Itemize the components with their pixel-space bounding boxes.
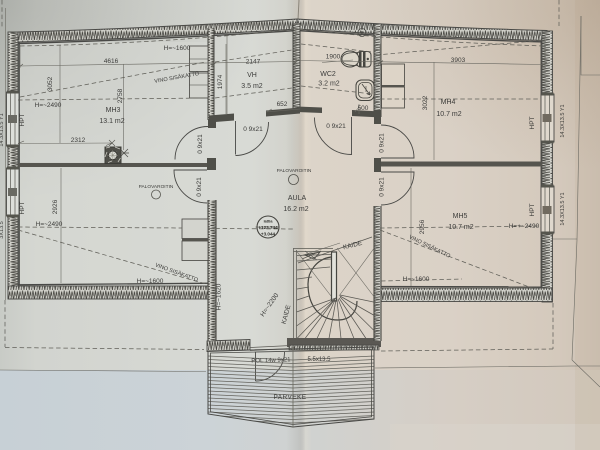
svg-text:0 9x21: 0 9x21: [379, 177, 386, 197]
svg-text:HPT: HPT: [19, 113, 26, 126]
svg-text:PALOVAROITIN: PALOVAROITIN: [139, 184, 174, 190]
svg-text:2926: 2926: [52, 199, 59, 214]
svg-text:HPT: HPT: [529, 116, 536, 129]
svg-text:MH5: MH5: [453, 213, 468, 220]
svg-text:13.1 m2: 13.1 m2: [99, 118, 124, 125]
svg-text:H=~2490: H=~2490: [36, 221, 63, 228]
svg-text:500: 500: [358, 105, 369, 112]
svg-text:H=+~2490: H=+~2490: [509, 223, 540, 230]
svg-text:4616: 4616: [104, 58, 119, 65]
svg-text:5.5x13.5: 5.5x13.5: [307, 357, 331, 363]
svg-text:0 9x21: 0 9x21: [197, 134, 204, 154]
svg-text:3.5 m2: 3.5 m2: [241, 83, 263, 90]
svg-text:3903: 3903: [451, 57, 466, 64]
svg-text:14.3X13.5 Y1: 14.3X13.5 Y1: [560, 192, 566, 225]
svg-text:14.3X13.5 Y1: 14.3X13.5 Y1: [0, 113, 5, 146]
svg-text:WC2: WC2: [320, 71, 336, 78]
svg-text:MH4: MH4: [441, 99, 456, 106]
svg-text:H=~1600: H=~1600: [403, 276, 430, 283]
svg-text:PALOVAROITIN: PALOVAROITIN: [277, 168, 312, 174]
svg-text:HPT: HPT: [529, 203, 536, 216]
svg-text:0 9x21: 0 9x21: [326, 123, 346, 130]
svg-text:0 9x21: 0 9x21: [379, 133, 386, 153]
svg-text:3052: 3052: [47, 76, 54, 91]
svg-text:0 9x21: 0 9x21: [196, 177, 203, 197]
svg-text:VH: VH: [247, 72, 257, 79]
svg-text:PARVEKE: PARVEKE: [274, 394, 307, 401]
svg-text:2956: 2956: [419, 219, 426, 234]
svg-text:10.7 m2: 10.7 m2: [436, 111, 461, 118]
svg-text:2758: 2758: [117, 88, 124, 103]
svg-text:2312: 2312: [71, 137, 86, 144]
svg-text:HPT: HPT: [19, 201, 26, 214]
svg-text:14.3X13.5 Y1: 14.3X13.5 Y1: [560, 104, 566, 137]
svg-text:652: 652: [277, 101, 288, 108]
svg-text:0 9x21: 0 9x21: [243, 126, 263, 133]
svg-text:H=~1620: H=~1620: [216, 283, 223, 310]
svg-text:1974: 1974: [217, 74, 224, 89]
svg-text:H=~1600: H=~1600: [164, 45, 191, 52]
svg-text:3.2 m2: 3.2 m2: [318, 81, 340, 88]
svg-text:AULA: AULA: [288, 195, 307, 202]
svg-text:2147: 2147: [246, 59, 261, 66]
svg-text:H=~2490: H=~2490: [35, 102, 62, 109]
svg-text:MH3: MH3: [106, 107, 121, 114]
svg-text:+123.744: +123.744: [258, 225, 278, 230]
svg-text:10.7 m2: 10.7 m2: [448, 224, 473, 231]
svg-text:1900: 1900: [326, 54, 341, 61]
svg-text:3022: 3022: [422, 95, 429, 110]
svg-text:16.2 m2: 16.2 m2: [283, 206, 308, 213]
svg-text:lattia: lattia: [264, 220, 274, 224]
svg-text:+3.044: +3.044: [261, 232, 276, 237]
svg-text:H=~1600: H=~1600: [137, 278, 164, 285]
svg-text:3X13.5: 3X13.5: [0, 221, 5, 238]
